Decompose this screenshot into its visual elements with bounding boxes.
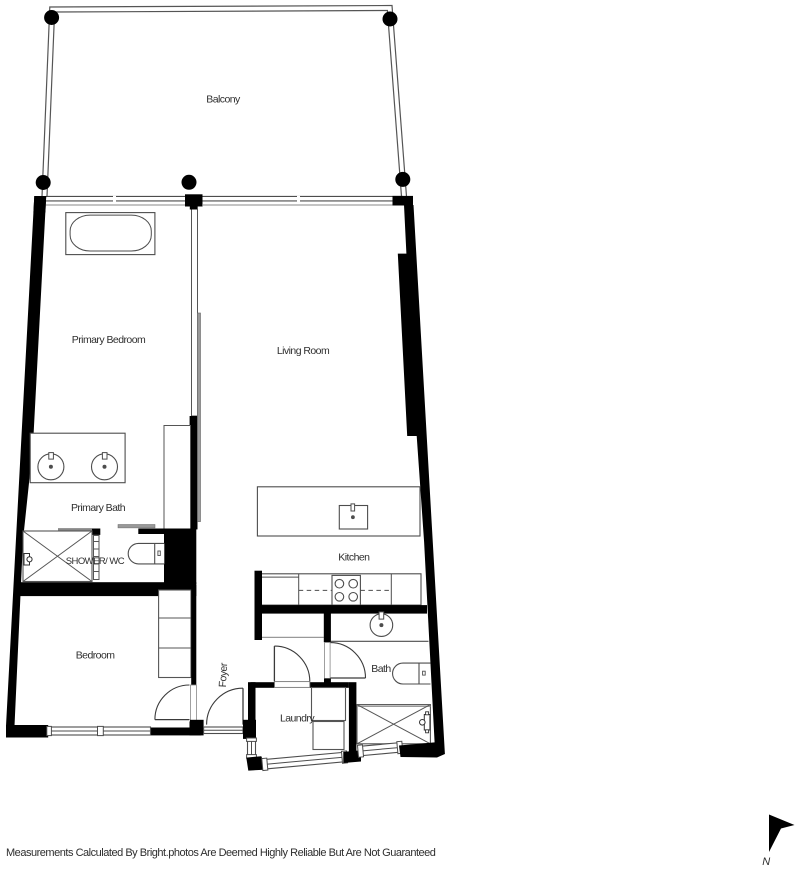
svg-text:Balcony: Balcony — [206, 94, 241, 106]
svg-text:Bath: Bath — [371, 663, 391, 675]
svg-text:Primary Bath: Primary Bath — [71, 502, 126, 514]
svg-text:Kitchen: Kitchen — [338, 552, 370, 564]
svg-text:Bedroom: Bedroom — [76, 649, 116, 661]
svg-text:Living Room: Living Room — [277, 345, 330, 357]
svg-text:Laundry: Laundry — [280, 713, 315, 725]
svg-text:Primary Bedroom: Primary Bedroom — [72, 334, 146, 346]
svg-text:Measurements Calculated By Bri: Measurements Calculated By Bright.photos… — [6, 847, 436, 859]
svg-text:Foyer: Foyer — [217, 662, 230, 688]
svg-text:SHOWER/ WC: SHOWER/ WC — [66, 556, 125, 567]
svg-text:N: N — [762, 856, 770, 868]
